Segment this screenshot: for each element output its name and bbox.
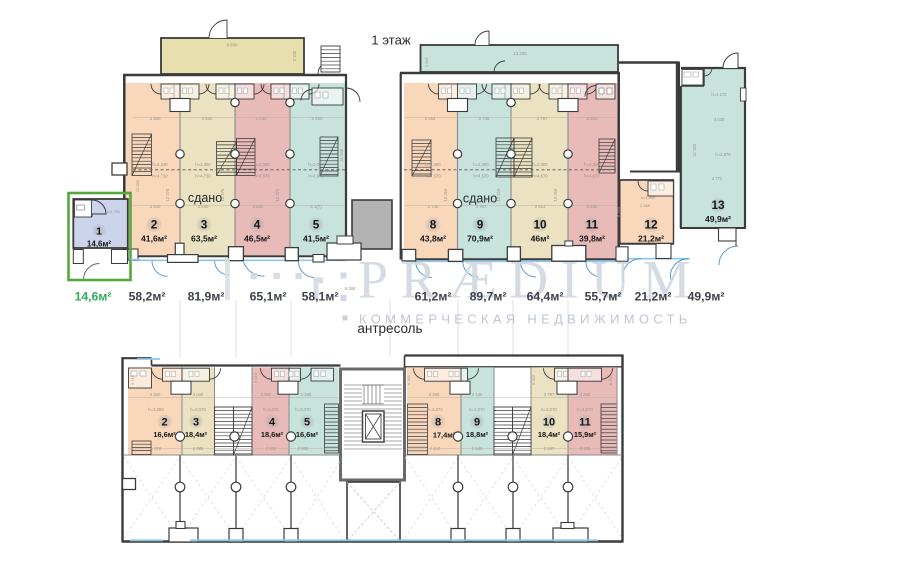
svg-text:3 797: 3 797 (544, 392, 555, 397)
svg-text:55,7м²: 55,7м² (585, 290, 622, 304)
svg-text:17,4м²: 17,4м² (433, 431, 456, 440)
svg-text:14,6м²: 14,6м² (75, 290, 112, 304)
svg-text:9: 9 (477, 218, 484, 232)
svg-text:h=4,975: h=4,975 (715, 152, 731, 157)
svg-text:61,2м²: 61,2м² (415, 290, 452, 304)
svg-text:5 590: 5 590 (616, 206, 621, 217)
svg-text:39,8м²: 39,8м² (579, 234, 605, 244)
svg-text:10: 10 (543, 416, 555, 428)
svg-text:9: 9 (474, 416, 480, 428)
svg-text:11: 11 (579, 416, 591, 428)
svg-text:h=2,300: h=2,300 (254, 162, 270, 167)
svg-text:16,6м²: 16,6м² (296, 430, 319, 439)
svg-text:11 304: 11 304 (692, 143, 697, 156)
svg-text:18,6м²: 18,6м² (261, 430, 284, 439)
svg-text:12 005: 12 005 (135, 179, 140, 192)
svg-text:18,4м²: 18,4м² (185, 430, 208, 439)
svg-text:3 560: 3 560 (202, 116, 214, 121)
svg-text:12 316: 12 316 (443, 188, 448, 201)
svg-text:8: 8 (435, 416, 441, 428)
svg-text:21,2м²: 21,2м² (638, 234, 664, 244)
svg-text:2: 2 (161, 416, 167, 428)
svg-text:h=4,700: h=4,700 (106, 209, 121, 214)
svg-text:h=2,280: h=2,280 (148, 407, 164, 412)
svg-text:3 300: 3 300 (587, 116, 599, 121)
svg-text:4: 4 (269, 416, 276, 428)
svg-text:1 985: 1 985 (424, 56, 429, 67)
svg-text:h=2,300: h=2,300 (473, 162, 489, 167)
svg-text:12 275: 12 275 (165, 188, 170, 201)
svg-text:49,9м²: 49,9м² (688, 290, 725, 304)
svg-text:3 748: 3 748 (479, 116, 491, 121)
svg-text:46м²: 46м² (531, 234, 550, 244)
svg-text:h=4,670: h=4,670 (254, 174, 270, 179)
svg-text:h=4,730: h=4,730 (195, 174, 211, 179)
svg-text:3 748: 3 748 (428, 204, 440, 209)
svg-text:6 119: 6 119 (253, 372, 258, 382)
svg-text:1 этаж: 1 этаж (371, 33, 411, 48)
svg-text:3 045: 3 045 (193, 392, 204, 397)
svg-text:41,5м²: 41,5м² (303, 234, 329, 244)
svg-text:3 260: 3 260 (150, 392, 161, 397)
svg-text:4 030: 4 030 (714, 117, 725, 122)
svg-text:2 566: 2 566 (640, 203, 651, 208)
svg-text:3 900: 3 900 (261, 392, 272, 397)
svg-text:антресоль: антресоль (357, 321, 422, 336)
svg-text:h=4,670: h=4,670 (584, 174, 600, 179)
svg-text:43,8м²: 43,8м² (420, 234, 446, 244)
svg-text:h=4,172: h=4,172 (711, 92, 727, 97)
svg-text:3 540: 3 540 (150, 204, 162, 209)
svg-text:9 600: 9 600 (227, 43, 239, 48)
svg-text:h=4,570: h=4,570 (425, 174, 441, 179)
svg-text:h=2,300: h=2,300 (425, 162, 441, 167)
svg-text:6 368: 6 368 (345, 286, 356, 291)
svg-text:18,4м²: 18,4м² (538, 430, 561, 439)
svg-text:h=2,070: h=2,070 (427, 407, 443, 412)
svg-text:70,9м²: 70,9м² (467, 234, 493, 244)
svg-text:h=2,070: h=2,070 (263, 407, 279, 412)
svg-text:49,9м²: 49,9м² (705, 214, 731, 224)
svg-text:4 772: 4 772 (712, 176, 723, 181)
svg-text:3 146: 3 146 (472, 392, 483, 397)
svg-text:11: 11 (586, 218, 599, 232)
svg-text:3 040: 3 040 (256, 116, 268, 121)
svg-text:12 316: 12 316 (553, 188, 558, 201)
svg-text:3 200: 3 200 (312, 116, 324, 121)
svg-text:63,5м²: 63,5м² (191, 234, 217, 244)
svg-text:89,7м²: 89,7м² (470, 290, 507, 304)
svg-text:58,1м²: 58,1м² (302, 290, 339, 304)
svg-text:3 514: 3 514 (535, 204, 547, 209)
svg-text:h=2,340: h=2,340 (152, 162, 168, 167)
svg-text:6 118: 6 118 (130, 374, 135, 384)
svg-text:5: 5 (304, 416, 310, 428)
svg-text:h=2,300: h=2,300 (532, 162, 548, 167)
svg-text:6 303: 6 303 (608, 374, 613, 385)
svg-text:64,4м²: 64,4м² (527, 290, 564, 304)
svg-text:1: 1 (96, 225, 102, 237)
svg-text:h=4,420: h=4,420 (641, 195, 656, 200)
svg-text:18,8м²: 18,8м² (466, 430, 489, 439)
svg-text:6 302: 6 302 (531, 374, 536, 385)
svg-text:h=2,300: h=2,300 (195, 162, 211, 167)
svg-text:3 800: 3 800 (253, 204, 265, 209)
svg-text:h=2,070: h=2,070 (469, 407, 485, 412)
svg-text:11 948: 11 948 (339, 148, 344, 161)
svg-text:15,9м²: 15,9м² (574, 430, 597, 439)
svg-text:h=2,070: h=2,070 (190, 407, 206, 412)
svg-text:h=4,670: h=4,670 (308, 174, 324, 179)
svg-text:h=2,300: h=2,300 (308, 162, 324, 167)
svg-text:81,9м²: 81,9м² (188, 290, 225, 304)
svg-text:3 265: 3 265 (301, 392, 312, 397)
svg-text:h=2,300: h=2,300 (584, 162, 600, 167)
svg-text:6 301: 6 301 (406, 374, 411, 385)
svg-text:4: 4 (254, 218, 261, 232)
svg-text:h=4,570: h=4,570 (473, 174, 489, 179)
svg-text:3 554: 3 554 (425, 116, 437, 121)
svg-text:46,5м²: 46,5м² (244, 234, 270, 244)
svg-text:8: 8 (430, 218, 437, 232)
svg-text:14,6м²: 14,6м² (87, 239, 111, 248)
svg-text:h=2,070: h=2,070 (295, 407, 311, 412)
svg-text:58,2м²: 58,2м² (129, 290, 166, 304)
svg-text:h=2,070: h=2,070 (577, 407, 593, 412)
svg-text:3: 3 (193, 416, 199, 428)
svg-text:10: 10 (533, 218, 547, 232)
svg-text:13 330: 13 330 (513, 51, 527, 56)
svg-text:2: 2 (151, 218, 158, 232)
svg-text:сдано: сдано (188, 191, 222, 205)
svg-text:65,1м²: 65,1м² (250, 290, 287, 304)
svg-text:3 885: 3 885 (587, 204, 599, 209)
svg-text:12 275: 12 275 (275, 188, 280, 201)
svg-text:h=2,070: h=2,070 (541, 407, 557, 412)
svg-text:3 365: 3 365 (429, 392, 440, 397)
svg-text:3 265: 3 265 (580, 392, 591, 397)
svg-text:сдано: сдано (463, 192, 497, 206)
svg-text:41,6м²: 41,6м² (141, 234, 167, 244)
svg-text:3 390: 3 390 (150, 116, 162, 121)
svg-text:2 330: 2 330 (292, 50, 297, 61)
svg-text:3 797: 3 797 (537, 116, 549, 121)
svg-text:12: 12 (644, 218, 658, 232)
svg-text:13: 13 (711, 198, 725, 212)
svg-text:5: 5 (313, 218, 320, 232)
svg-text:6 1(7): 6 1(7) (310, 204, 322, 209)
svg-text:16,6м²: 16,6м² (153, 430, 176, 439)
svg-text:21,2м²: 21,2м² (635, 290, 672, 304)
svg-text:3: 3 (201, 218, 208, 232)
svg-text:h=4,670: h=4,670 (532, 174, 548, 179)
svg-text:h=4,730: h=4,730 (152, 174, 168, 179)
